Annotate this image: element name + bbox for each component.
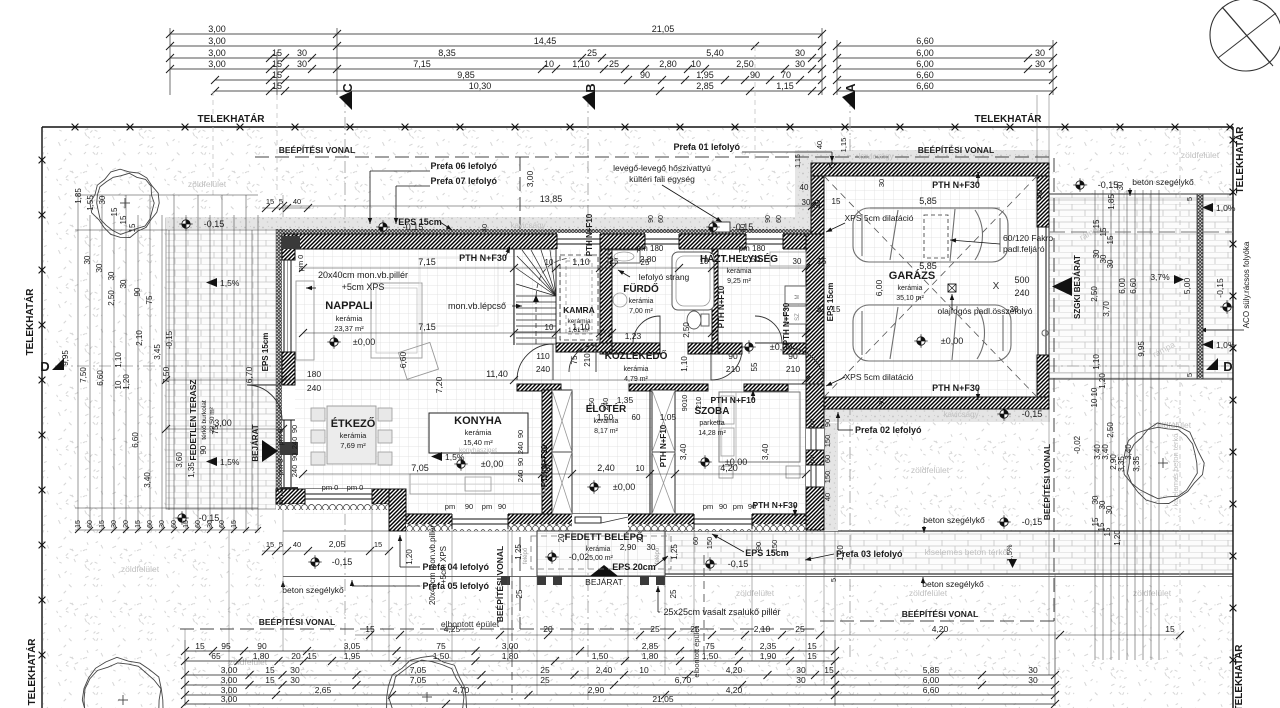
- svg-text:PTH N+F30: PTH N+F30: [932, 180, 980, 190]
- svg-text:60: 60: [823, 455, 832, 463]
- svg-text:kerámia: kerámia: [727, 268, 752, 275]
- svg-text:25: 25: [515, 589, 524, 598]
- svg-text:1,15: 1,15: [839, 138, 848, 153]
- svg-text:6,60: 6,60: [916, 81, 934, 91]
- svg-text:30: 30: [95, 263, 104, 272]
- svg-text:pm 0: pm 0: [347, 483, 364, 492]
- svg-text:+5cm XPS: +5cm XPS: [342, 282, 385, 292]
- svg-text:6,60: 6,60: [398, 351, 408, 368]
- svg-text:3,7%: 3,7%: [1150, 272, 1170, 282]
- svg-text:2,40: 2,40: [596, 665, 613, 675]
- svg-text:1,35: 1,35: [617, 395, 634, 405]
- svg-text:KAMRA: KAMRA: [563, 305, 595, 315]
- svg-text:3,60: 3,60: [175, 452, 184, 468]
- svg-text:9,95: 9,95: [1137, 341, 1146, 357]
- svg-text:30: 30: [119, 279, 128, 288]
- svg-text:zöldfelület: zöldfelület: [188, 179, 227, 189]
- svg-text:2,85: 2,85: [642, 641, 659, 651]
- svg-text:15: 15: [832, 305, 841, 314]
- svg-text:EPS 15cm: EPS 15cm: [745, 548, 789, 558]
- svg-text:1,05: 1,05: [660, 412, 677, 422]
- svg-text:1,20: 1,20: [122, 374, 131, 390]
- svg-text:3,40: 3,40: [678, 443, 688, 460]
- svg-text:3,70: 3,70: [1102, 301, 1111, 317]
- svg-text:1,15: 1,15: [795, 154, 802, 168]
- svg-text:1,80: 1,80: [502, 651, 519, 661]
- svg-text:2,50: 2,50: [1106, 422, 1115, 438]
- svg-text:240: 240: [536, 364, 550, 374]
- svg-text:lefolyó strang: lefolyó strang: [639, 272, 690, 282]
- svg-text:XPS 5cm dilatáció: XPS 5cm dilatáció: [845, 372, 914, 382]
- svg-text:210: 210: [583, 353, 592, 367]
- svg-text:6,70: 6,70: [244, 366, 254, 383]
- svg-text:90: 90: [516, 458, 525, 466]
- svg-text:15: 15: [119, 215, 128, 224]
- svg-text:40: 40: [1035, 190, 1044, 198]
- svg-text:40: 40: [823, 493, 832, 501]
- svg-text:90: 90: [465, 502, 473, 511]
- svg-text:60: 60: [195, 520, 202, 528]
- svg-text:30: 30: [297, 48, 307, 58]
- svg-text:75: 75: [705, 641, 715, 651]
- svg-text:5,85: 5,85: [923, 665, 940, 675]
- svg-text:15: 15: [265, 675, 275, 685]
- svg-text:D: D: [40, 359, 49, 374]
- svg-text:1,25: 1,25: [670, 544, 679, 560]
- svg-text:BEÉPÍTÉSI VONAL: BEÉPÍTÉSI VONAL: [259, 617, 336, 627]
- svg-text:Prefa 03 lefolyó: Prefa 03 lefolyó: [836, 549, 903, 559]
- svg-text:15: 15: [818, 257, 827, 266]
- svg-text:3,00: 3,00: [208, 59, 226, 69]
- svg-text:pm 0: pm 0: [322, 483, 339, 492]
- svg-text:90: 90: [290, 425, 299, 433]
- svg-text:7,15: 7,15: [418, 322, 436, 332]
- svg-text:1,85: 1,85: [1107, 194, 1116, 210]
- svg-text:Prefa 01 lefolyó: Prefa 01 lefolyó: [673, 142, 740, 152]
- svg-text:kavicságy: kavicságy: [858, 152, 893, 161]
- svg-text:EPS 15cm: EPS 15cm: [826, 283, 835, 322]
- svg-text:90: 90: [498, 502, 506, 511]
- svg-text:10: 10: [545, 323, 554, 332]
- svg-text:-0,15: -0,15: [332, 557, 353, 567]
- svg-text:1,23: 1,23: [625, 331, 642, 341]
- svg-text:mon.vb.lépcső: mon.vb.lépcső: [448, 301, 506, 311]
- svg-text:10: 10: [636, 464, 645, 473]
- svg-text:210: 210: [694, 397, 703, 410]
- svg-text:40: 40: [738, 224, 747, 232]
- svg-text:NAPPALI: NAPPALI: [325, 300, 372, 312]
- svg-text:90: 90: [290, 453, 299, 461]
- svg-text:30: 30: [647, 543, 656, 552]
- svg-text:pm 180: pm 180: [637, 244, 664, 253]
- svg-text:4,20: 4,20: [932, 624, 949, 634]
- svg-text:2,90: 2,90: [588, 685, 605, 695]
- svg-text:7,20: 7,20: [434, 376, 444, 393]
- svg-text:15: 15: [265, 665, 275, 675]
- svg-text:210: 210: [786, 364, 800, 374]
- svg-text:15: 15: [832, 197, 841, 206]
- svg-text:PTH N+F10: PTH N+F10: [585, 213, 594, 256]
- svg-text:40: 40: [480, 224, 489, 232]
- svg-text:ÉTKEZŐ: ÉTKEZŐ: [331, 417, 376, 430]
- svg-text:1,90: 1,90: [760, 651, 777, 661]
- svg-text:2,40: 2,40: [597, 463, 615, 473]
- svg-text:150: 150: [823, 471, 832, 484]
- svg-text:2,85: 2,85: [696, 81, 714, 91]
- svg-text:15: 15: [365, 624, 375, 634]
- svg-text:1,50: 1,50: [592, 651, 609, 661]
- svg-text:PTH N+F10: PTH N+F10: [717, 285, 726, 328]
- svg-text:kerámia: kerámia: [465, 428, 493, 437]
- svg-text:6,00: 6,00: [874, 279, 884, 296]
- svg-text:pm: pm: [809, 418, 816, 427]
- svg-text:1,10: 1,10: [680, 356, 689, 372]
- svg-text:1,80: 1,80: [253, 651, 270, 661]
- svg-text:PTH N+F30: PTH N+F30: [932, 383, 980, 393]
- svg-text:240: 240: [601, 398, 610, 411]
- svg-text:beton szegélykő: beton szegélykő: [282, 585, 344, 595]
- svg-text:7,15: 7,15: [418, 257, 436, 267]
- svg-text:3,40: 3,40: [143, 472, 152, 488]
- svg-text:25: 25: [540, 665, 550, 675]
- svg-text:25x25cm vasalt zsalukő pillér: 25x25cm vasalt zsalukő pillér: [663, 607, 780, 617]
- svg-text:60: 60: [171, 520, 178, 528]
- svg-text:10: 10: [691, 59, 701, 69]
- svg-text:pm: pm: [482, 502, 492, 511]
- svg-text:2,50: 2,50: [107, 290, 116, 306]
- svg-text:15: 15: [75, 520, 82, 528]
- svg-text:pm: pm: [733, 502, 743, 511]
- svg-text:2,10: 2,10: [135, 330, 144, 346]
- svg-text:3,35: 3,35: [1132, 456, 1141, 472]
- svg-text:D: D: [1223, 359, 1232, 374]
- svg-text:pm 0: pm 0: [276, 489, 285, 506]
- svg-text:90: 90: [516, 430, 525, 438]
- svg-text:beton szegélykő: beton szegélykő: [923, 515, 985, 525]
- svg-text:7,15: 7,15: [413, 59, 431, 69]
- svg-text:KONYHA: KONYHA: [454, 415, 502, 427]
- svg-text:6,60: 6,60: [916, 36, 934, 46]
- svg-text:30: 30: [1106, 259, 1115, 268]
- svg-text:TELEKHATÁR: TELEKHATÁR: [23, 288, 36, 356]
- svg-text:kerámia: kerámia: [586, 546, 611, 553]
- svg-text:30: 30: [793, 257, 802, 266]
- svg-text:90: 90: [257, 641, 267, 651]
- svg-text:40: 40: [293, 197, 301, 206]
- svg-text:13,85: 13,85: [540, 194, 563, 204]
- svg-text:levegő-levegő hőszivattyú: levegő-levegő hőszivattyú: [613, 163, 711, 173]
- svg-text:30: 30: [290, 675, 300, 685]
- svg-text:PTH N+F30: PTH N+F30: [459, 253, 507, 263]
- svg-text:65: 65: [211, 651, 221, 661]
- svg-text:240: 240: [1014, 288, 1029, 298]
- svg-text:PTH N+F10: PTH N+F10: [710, 395, 755, 405]
- svg-text:BEJÁRAT: BEJÁRAT: [585, 577, 623, 587]
- svg-text:90: 90: [648, 215, 655, 223]
- svg-text:+5cm XPS: +5cm XPS: [439, 546, 448, 584]
- svg-text:1,5%: 1,5%: [220, 278, 240, 288]
- svg-text:9,25 m²: 9,25 m²: [727, 278, 751, 285]
- svg-text:90: 90: [133, 287, 142, 296]
- svg-text:8,17 m²: 8,17 m²: [594, 428, 618, 435]
- svg-text:Prefa 07 lefolyó: Prefa 07 lefolyó: [430, 176, 497, 186]
- svg-text:150: 150: [705, 537, 714, 550]
- svg-text:zöldfelület: zöldfelület: [1153, 420, 1192, 430]
- svg-text:3,00: 3,00: [502, 641, 519, 651]
- svg-text:30: 30: [1035, 48, 1045, 58]
- svg-text:1,50: 1,50: [433, 651, 450, 661]
- svg-text:1,10: 1,10: [572, 322, 590, 332]
- svg-text:15: 15: [307, 651, 317, 661]
- svg-text:30: 30: [795, 48, 805, 58]
- svg-text:konyhasziget: konyhasziget: [459, 447, 497, 454]
- svg-text:pm 180: pm 180: [739, 244, 766, 253]
- svg-text:±0,00: ±0,00: [941, 336, 963, 346]
- svg-text:9010: 9010: [680, 395, 689, 412]
- svg-text:BEÉPÍTÉSI VONAL: BEÉPÍTÉSI VONAL: [1042, 444, 1052, 521]
- svg-text:-0,15: -0,15: [1022, 409, 1043, 419]
- svg-text:110: 110: [536, 351, 550, 361]
- svg-text:15: 15: [195, 641, 205, 651]
- svg-text:1,50: 1,50: [597, 412, 614, 422]
- svg-text:20: 20: [557, 533, 566, 542]
- svg-text:90: 90: [823, 419, 832, 427]
- svg-text:4,25: 4,25: [444, 624, 461, 634]
- svg-text:TELEKHATÁR: TELEKHATÁR: [1233, 126, 1246, 194]
- svg-text:15: 15: [266, 540, 274, 549]
- svg-text:60: 60: [87, 520, 94, 528]
- svg-text:40: 40: [800, 183, 809, 192]
- svg-text:15: 15: [1103, 527, 1112, 536]
- svg-text:30: 30: [816, 305, 825, 314]
- svg-text:3,00: 3,00: [221, 694, 238, 704]
- svg-text:6,60: 6,60: [916, 70, 934, 80]
- svg-text:6,70: 6,70: [675, 675, 692, 685]
- svg-text:35,10 m²: 35,10 m²: [896, 295, 924, 302]
- svg-text:5,40: 5,40: [706, 48, 724, 58]
- svg-text:TELEKHATÁR: TELEKHATÁR: [1232, 644, 1245, 708]
- svg-text:240: 240: [290, 437, 299, 450]
- svg-text:1,5%: 1,5%: [1005, 544, 1014, 561]
- svg-text:SZGKI BEJÁRAT: SZGKI BEJÁRAT: [1073, 255, 1082, 319]
- svg-text:15: 15: [231, 520, 238, 528]
- svg-text:8,35: 8,35: [438, 48, 456, 58]
- svg-text:BEJÁRAT: BEJÁRAT: [251, 424, 260, 461]
- svg-text:zöldfelület: zöldfelület: [121, 564, 160, 574]
- svg-text:30: 30: [98, 195, 107, 204]
- svg-text:1,20: 1,20: [836, 545, 845, 561]
- svg-text:30: 30: [795, 59, 805, 69]
- svg-text:B: B: [583, 83, 598, 92]
- svg-text:5: 5: [829, 578, 838, 582]
- svg-text:25: 25: [609, 59, 619, 69]
- svg-text:kerámia: kerámia: [629, 298, 654, 305]
- svg-text:7,69 m²: 7,69 m²: [340, 441, 366, 450]
- svg-text:kerámia: kerámia: [898, 285, 923, 292]
- svg-text:1,50: 1,50: [702, 651, 719, 661]
- svg-text:75: 75: [436, 641, 446, 651]
- svg-text:TELEKHATÁR: TELEKHATÁR: [197, 112, 265, 125]
- svg-text:±0,00: ±0,00: [353, 337, 375, 347]
- svg-text:21,05: 21,05: [652, 694, 674, 704]
- svg-text:3,00: 3,00: [208, 24, 226, 34]
- svg-text:pm: pm: [809, 454, 816, 463]
- svg-text:KÖZLEKEDŐ: KÖZLEKEDŐ: [605, 349, 668, 362]
- svg-text:Prefa 02 lefolyó: Prefa 02 lefolyó: [855, 425, 922, 435]
- svg-text:30: 30: [290, 665, 300, 675]
- svg-text:90: 90: [199, 445, 208, 454]
- svg-text:PTH N+F30: PTH N+F30: [782, 302, 791, 345]
- svg-text:3,00: 3,00: [221, 675, 238, 685]
- svg-text:2,50: 2,50: [744, 254, 761, 264]
- svg-text:-0,15: -0,15: [1215, 278, 1225, 298]
- svg-text:FÜRDŐ: FÜRDŐ: [623, 282, 659, 295]
- svg-text:10: 10: [700, 257, 709, 266]
- svg-text:240: 240: [516, 442, 525, 455]
- svg-text:2,50: 2,50: [682, 322, 691, 338]
- svg-text:-0,15: -0,15: [403, 222, 424, 232]
- svg-text:55: 55: [750, 362, 759, 371]
- svg-text:150: 150: [587, 398, 596, 411]
- svg-text:10: 10: [1090, 398, 1099, 407]
- svg-text:90: 90: [788, 351, 798, 361]
- svg-text:beton szegélykő: beton szegélykő: [922, 579, 984, 589]
- svg-text:25: 25: [641, 258, 650, 267]
- svg-text:240: 240: [307, 383, 321, 393]
- svg-text:5,00 m²: 5,00 m²: [589, 555, 613, 562]
- svg-text:60: 60: [658, 215, 665, 223]
- svg-text:-0,15: -0,15: [728, 559, 749, 569]
- svg-text:3,00: 3,00: [221, 665, 238, 675]
- svg-text:6,00: 6,00: [916, 48, 934, 58]
- svg-text:3,00: 3,00: [208, 48, 226, 58]
- svg-text:pm 0: pm 0: [276, 459, 285, 476]
- svg-text:1,35: 1,35: [187, 462, 196, 478]
- svg-text:21,05: 21,05: [652, 24, 675, 34]
- svg-text:5,85: 5,85: [919, 261, 937, 271]
- svg-text:1,80: 1,80: [642, 651, 659, 661]
- svg-text:3,05: 3,05: [344, 641, 361, 651]
- svg-text:2,50: 2,50: [736, 59, 754, 69]
- svg-text:1,5%: 1,5%: [220, 457, 240, 467]
- svg-text:3,00: 3,00: [208, 36, 226, 46]
- svg-text:40: 40: [815, 141, 824, 149]
- svg-text:1,10: 1,10: [114, 352, 123, 368]
- svg-text:15: 15: [807, 651, 817, 661]
- svg-text:2,10: 2,10: [754, 624, 771, 634]
- svg-text:60: 60: [776, 215, 783, 223]
- svg-text:kiselemes beton térkő: kiselemes beton térkő: [925, 547, 1008, 557]
- svg-text:30: 30: [207, 520, 214, 528]
- svg-text:kavicságy: kavicságy: [943, 410, 978, 419]
- svg-text:zöldfelület: zöldfelület: [911, 465, 950, 475]
- svg-text:150: 150: [823, 435, 832, 448]
- svg-text:25: 25: [690, 624, 700, 634]
- svg-text:25: 25: [540, 675, 550, 685]
- svg-text:15: 15: [110, 207, 119, 216]
- svg-text:15: 15: [135, 520, 142, 528]
- svg-text:-0,02: -0,02: [1073, 435, 1082, 454]
- svg-text:30: 30: [796, 675, 806, 685]
- svg-text:20: 20: [291, 651, 301, 661]
- svg-text:75: 75: [145, 295, 154, 304]
- svg-text:3,45: 3,45: [153, 344, 162, 360]
- svg-text:14,45: 14,45: [534, 36, 557, 46]
- svg-text:5,85: 5,85: [919, 196, 937, 206]
- svg-text:90: 90: [640, 70, 650, 80]
- svg-text:10: 10: [1090, 387, 1099, 396]
- svg-text:30: 30: [111, 520, 118, 528]
- svg-text:30: 30: [1028, 675, 1038, 685]
- svg-text:7,05: 7,05: [411, 463, 429, 473]
- svg-text:kültéri fali egység: kültéri fali egység: [629, 174, 695, 184]
- svg-text:25: 25: [650, 624, 660, 634]
- svg-text:10: 10: [545, 258, 554, 267]
- svg-text:15: 15: [99, 520, 106, 528]
- svg-text:7,05: 7,05: [410, 665, 427, 675]
- svg-text:6,00: 6,00: [1118, 278, 1127, 294]
- svg-text:zöldfelület: zöldfelület: [909, 588, 948, 598]
- svg-text:6,60: 6,60: [96, 370, 105, 386]
- svg-text:X: X: [993, 281, 1000, 292]
- svg-text:30: 30: [297, 59, 307, 69]
- svg-text:zöldfelület: zöldfelület: [736, 588, 775, 598]
- svg-text:-0,15: -0,15: [1022, 517, 1043, 527]
- svg-text:1,95: 1,95: [344, 651, 361, 661]
- svg-text:Prefa 06 lefolyó: Prefa 06 lefolyó: [430, 161, 497, 171]
- svg-text:FEDETLEN TERASZ: FEDETLEN TERASZ: [188, 379, 198, 460]
- svg-text:1,15: 1,15: [776, 81, 794, 91]
- svg-text:60: 60: [147, 520, 154, 528]
- svg-text:25: 25: [610, 257, 619, 266]
- svg-text:1,25: 1,25: [514, 544, 523, 560]
- svg-text:±0,00: ±0,00: [613, 482, 635, 492]
- svg-text:90: 90: [765, 215, 772, 223]
- svg-text:30: 30: [796, 665, 806, 675]
- svg-text:9,95: 9,95: [61, 350, 70, 366]
- svg-text:-0,15: -0,15: [204, 219, 225, 229]
- svg-text:XPS 5cm dilatáció: XPS 5cm dilatáció: [845, 213, 914, 223]
- svg-text:15: 15: [374, 540, 382, 549]
- svg-text:padl.feljáró: padl.feljáró: [1003, 244, 1045, 254]
- svg-text:5: 5: [1185, 373, 1194, 377]
- svg-text:90: 90: [719, 502, 727, 511]
- svg-text:15: 15: [1092, 219, 1101, 228]
- svg-text:10: 10: [544, 59, 554, 69]
- svg-text:térkő burkolat: térkő burkolat: [201, 400, 208, 440]
- svg-text:30: 30: [877, 398, 886, 406]
- svg-text:HÁZT.HELYISÉG: HÁZT.HELYISÉG: [700, 252, 778, 265]
- svg-text:75: 75: [570, 355, 579, 364]
- svg-text:25: 25: [669, 589, 678, 598]
- svg-text:25: 25: [542, 464, 551, 473]
- svg-text:30: 30: [159, 520, 166, 528]
- svg-text:150: 150: [770, 540, 779, 553]
- svg-text:9,85: 9,85: [457, 70, 475, 80]
- svg-text:20: 20: [543, 624, 553, 634]
- svg-text:6,00: 6,00: [923, 675, 940, 685]
- svg-text:2,50: 2,50: [1090, 286, 1099, 302]
- svg-text:30: 30: [1105, 505, 1114, 514]
- svg-text:M: M: [795, 295, 801, 300]
- svg-text:-0,15: -0,15: [165, 330, 174, 349]
- svg-text:15: 15: [183, 520, 190, 528]
- svg-text:EPS 20cm: EPS 20cm: [612, 562, 656, 572]
- svg-text:kerámia: kerámia: [336, 314, 364, 323]
- svg-text:2,65: 2,65: [315, 685, 332, 695]
- svg-text:3,00: 3,00: [525, 170, 535, 187]
- svg-text:BEÉPÍTÉSI VONAL: BEÉPÍTÉSI VONAL: [279, 145, 356, 155]
